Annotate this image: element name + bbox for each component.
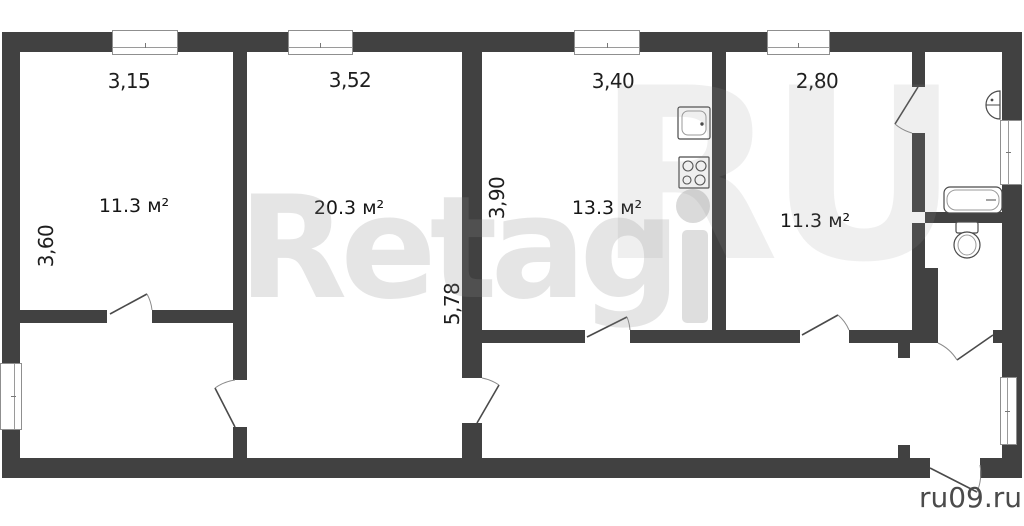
bathroom-sink-icon xyxy=(970,88,1004,122)
area-kitchen: 13.3 м² xyxy=(567,197,647,219)
window-tick xyxy=(798,43,799,48)
door-room4 xyxy=(795,308,855,348)
window-tick xyxy=(320,43,321,48)
window-room1 xyxy=(112,30,178,55)
door-hall-room2 xyxy=(205,375,255,430)
window-tick xyxy=(1005,411,1010,412)
exterior-wall-bottom xyxy=(2,458,1022,478)
area-room4: 11.3 м² xyxy=(775,210,855,232)
window-room4 xyxy=(767,30,830,55)
wall-kitchen-room4 xyxy=(712,52,726,343)
door-wc xyxy=(930,325,1000,370)
opening-corridor-entry xyxy=(896,358,912,445)
dim-room1-width: 3,15 xyxy=(99,69,159,93)
boiler-icon xyxy=(676,189,710,223)
dim-room1-height: 3,60 xyxy=(34,216,58,276)
floor-plan: 3,15 3,52 3,40 2,80 3,60 3,90 5,78 11.3 … xyxy=(0,0,1024,526)
window-entry-right xyxy=(1000,377,1017,445)
wall-wc-step xyxy=(923,268,938,330)
area-room2: 20.3 м² xyxy=(309,197,389,219)
kitchen-sink-icon xyxy=(676,105,712,141)
window-tick xyxy=(11,396,16,397)
dim-room2-height: 5,78 xyxy=(440,274,464,334)
area-room1: 11.3 м² xyxy=(94,195,174,217)
dim-kitchen-width: 3,40 xyxy=(583,69,643,93)
watermark-site: ru09.ru xyxy=(919,481,1022,514)
bathtub-icon xyxy=(942,185,1004,215)
toilet-icon xyxy=(948,220,986,260)
kitchen-counter-icon xyxy=(682,230,708,323)
door-kitchen xyxy=(580,310,635,350)
window-tick xyxy=(145,43,146,48)
window-tick xyxy=(1006,152,1011,153)
door-room1 xyxy=(100,285,160,330)
window-bathroom-right xyxy=(1000,120,1022,185)
window-kitchen xyxy=(574,30,640,55)
window-room2 xyxy=(288,30,353,55)
door-room2-corridor xyxy=(455,370,510,430)
window-tick xyxy=(607,43,608,48)
door-bathroom xyxy=(885,80,930,140)
dim-kitchen-height: 3,90 xyxy=(485,168,509,228)
dim-room4-width: 2,80 xyxy=(787,69,847,93)
stove-icon xyxy=(678,156,710,189)
window-hall-left xyxy=(0,363,22,430)
dim-room2-width: 3,52 xyxy=(320,68,380,92)
wall-south-interior xyxy=(482,330,1002,343)
